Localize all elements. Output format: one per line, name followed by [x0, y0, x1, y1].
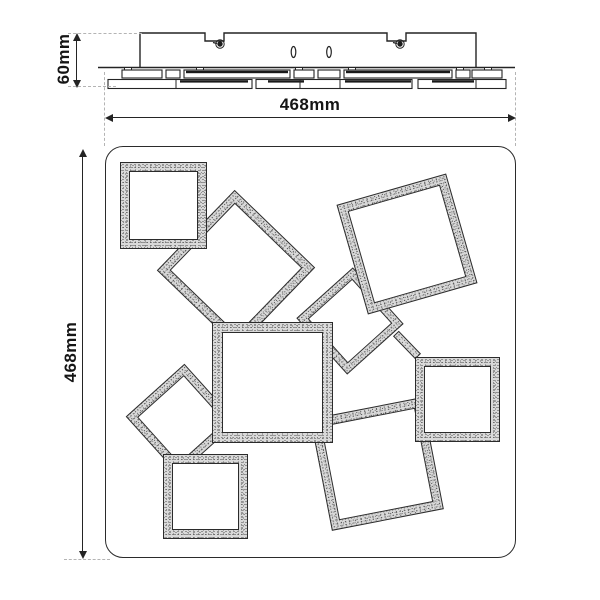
arrowhead-down — [73, 80, 81, 88]
square-inner-face — [424, 366, 491, 433]
arrowhead-up — [73, 33, 81, 41]
width-dimension-label: 468mm — [260, 95, 360, 115]
square-bottom-left — [163, 454, 248, 539]
square-top-left — [120, 162, 207, 249]
side-view-drawing — [0, 0, 600, 100]
square-inner-face — [222, 332, 323, 433]
arrowhead-down — [79, 551, 87, 559]
square-inner-face — [347, 185, 466, 304]
square-inner-face — [129, 171, 198, 240]
arrowhead-up — [79, 149, 87, 157]
square-right — [415, 357, 500, 442]
square-inner-face — [172, 463, 239, 530]
height-dimension-label: 60mm — [54, 28, 74, 90]
height-dimension-line — [76, 38, 77, 81]
extension-line-right — [515, 72, 516, 146]
extension-line-left — [104, 72, 105, 146]
depth-dimension-label: 468mm — [61, 301, 81, 403]
lamp-dimension-drawing: 60mm 468mm 468mm — [0, 0, 600, 600]
depth-dimension-line — [82, 154, 83, 552]
arrowhead-right — [508, 114, 516, 122]
arrowhead-left — [105, 114, 113, 122]
extension-line-bottom — [64, 559, 110, 560]
width-dimension-line — [110, 117, 510, 118]
square-center — [212, 322, 333, 443]
